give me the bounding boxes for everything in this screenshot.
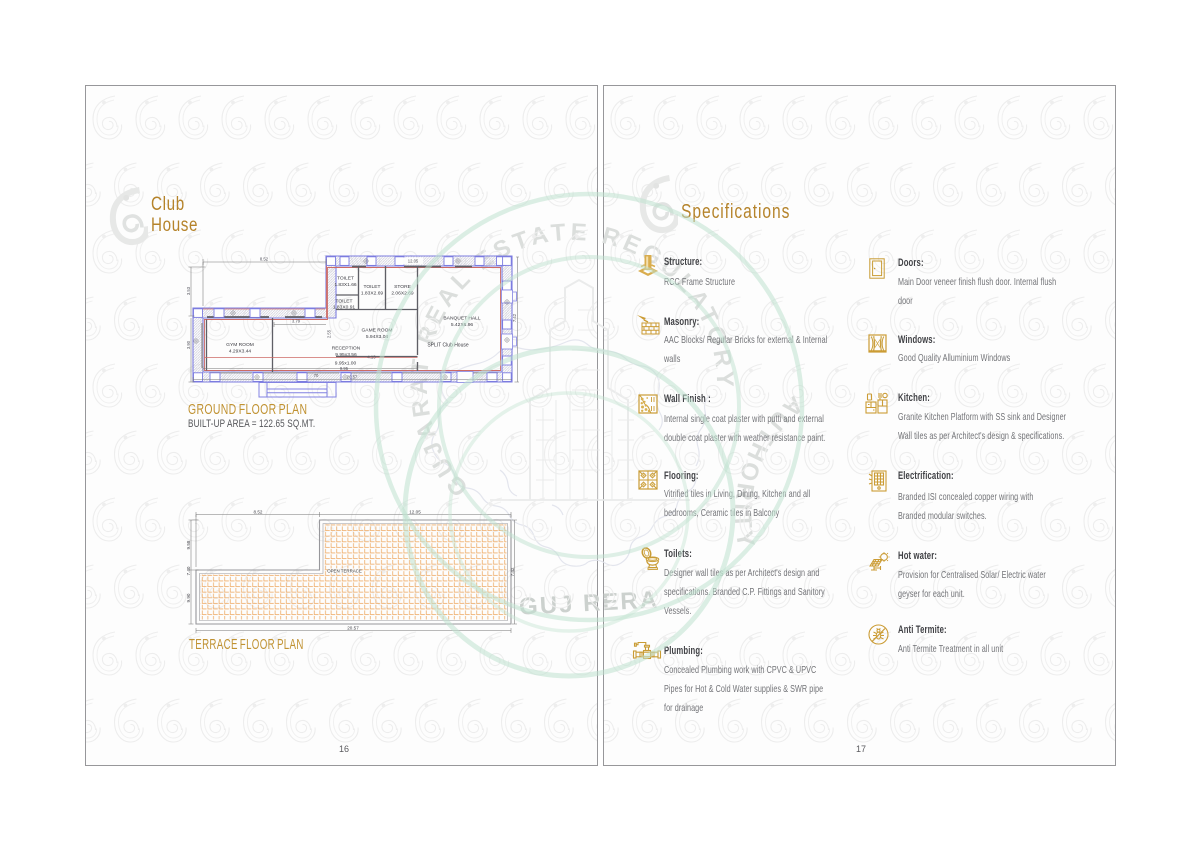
svg-text:70: 70 [314,373,319,378]
svg-text:2.06X2.69: 2.06X2.69 [391,291,414,297]
svg-text:SPLIT Club House: SPLIT Club House [427,343,469,349]
svg-text:12.05: 12.05 [408,258,419,263]
svg-text:1.83X2.69: 1.83X2.69 [361,291,384,297]
svg-text:8.52: 8.52 [260,257,269,262]
svg-text:2.55: 2.55 [327,329,332,338]
svg-text:12.05: 12.05 [409,509,421,514]
svg-text:RECEPTION: RECEPTION [332,346,361,352]
svg-text:4.13: 4.13 [367,355,376,360]
svg-text:7.42: 7.42 [512,313,517,322]
svg-text:8.52: 8.52 [254,509,263,514]
svg-text:3.79: 3.79 [292,319,301,324]
svg-text:GAME ROOM: GAME ROOM [362,328,393,334]
svg-text:4.29X3.44: 4.29X3.44 [229,349,252,355]
svg-text:7.40: 7.40 [186,566,191,575]
svg-text:5.42X6.96: 5.42X6.96 [451,322,474,328]
svg-text:TOILET: TOILET [337,276,354,282]
svg-text:BANQUET HALL: BANQUET HALL [443,316,480,322]
svg-text:5.94X3.04: 5.94X3.04 [366,334,389,340]
svg-text:STORE: STORE [394,284,411,290]
svg-text:9.58: 9.58 [186,540,191,549]
svg-text:20.57: 20.57 [347,625,359,630]
svg-text:20.57: 20.57 [347,374,358,379]
svg-text:9.95x1.00: 9.95x1.00 [335,361,357,367]
svg-text:1.83X1.66: 1.83X1.66 [334,282,357,288]
svg-text:3.53: 3.53 [186,286,191,295]
svg-text:TOILET: TOILET [363,284,380,290]
svg-text:3.90: 3.90 [186,340,191,349]
svg-text:GYM ROOM: GYM ROOM [226,342,254,348]
svg-text:9.95: 9.95 [340,366,349,371]
svg-text:7.42: 7.42 [510,567,515,576]
svg-text:TOILET: TOILET [335,299,352,305]
svg-text:9.95x3.56: 9.95x3.56 [335,352,357,358]
svg-text:9.90: 9.90 [186,593,191,602]
svg-text:1.83X0.91: 1.83X0.91 [333,305,356,311]
svg-text:OPEN TERRACE: OPEN TERRACE [327,569,362,574]
